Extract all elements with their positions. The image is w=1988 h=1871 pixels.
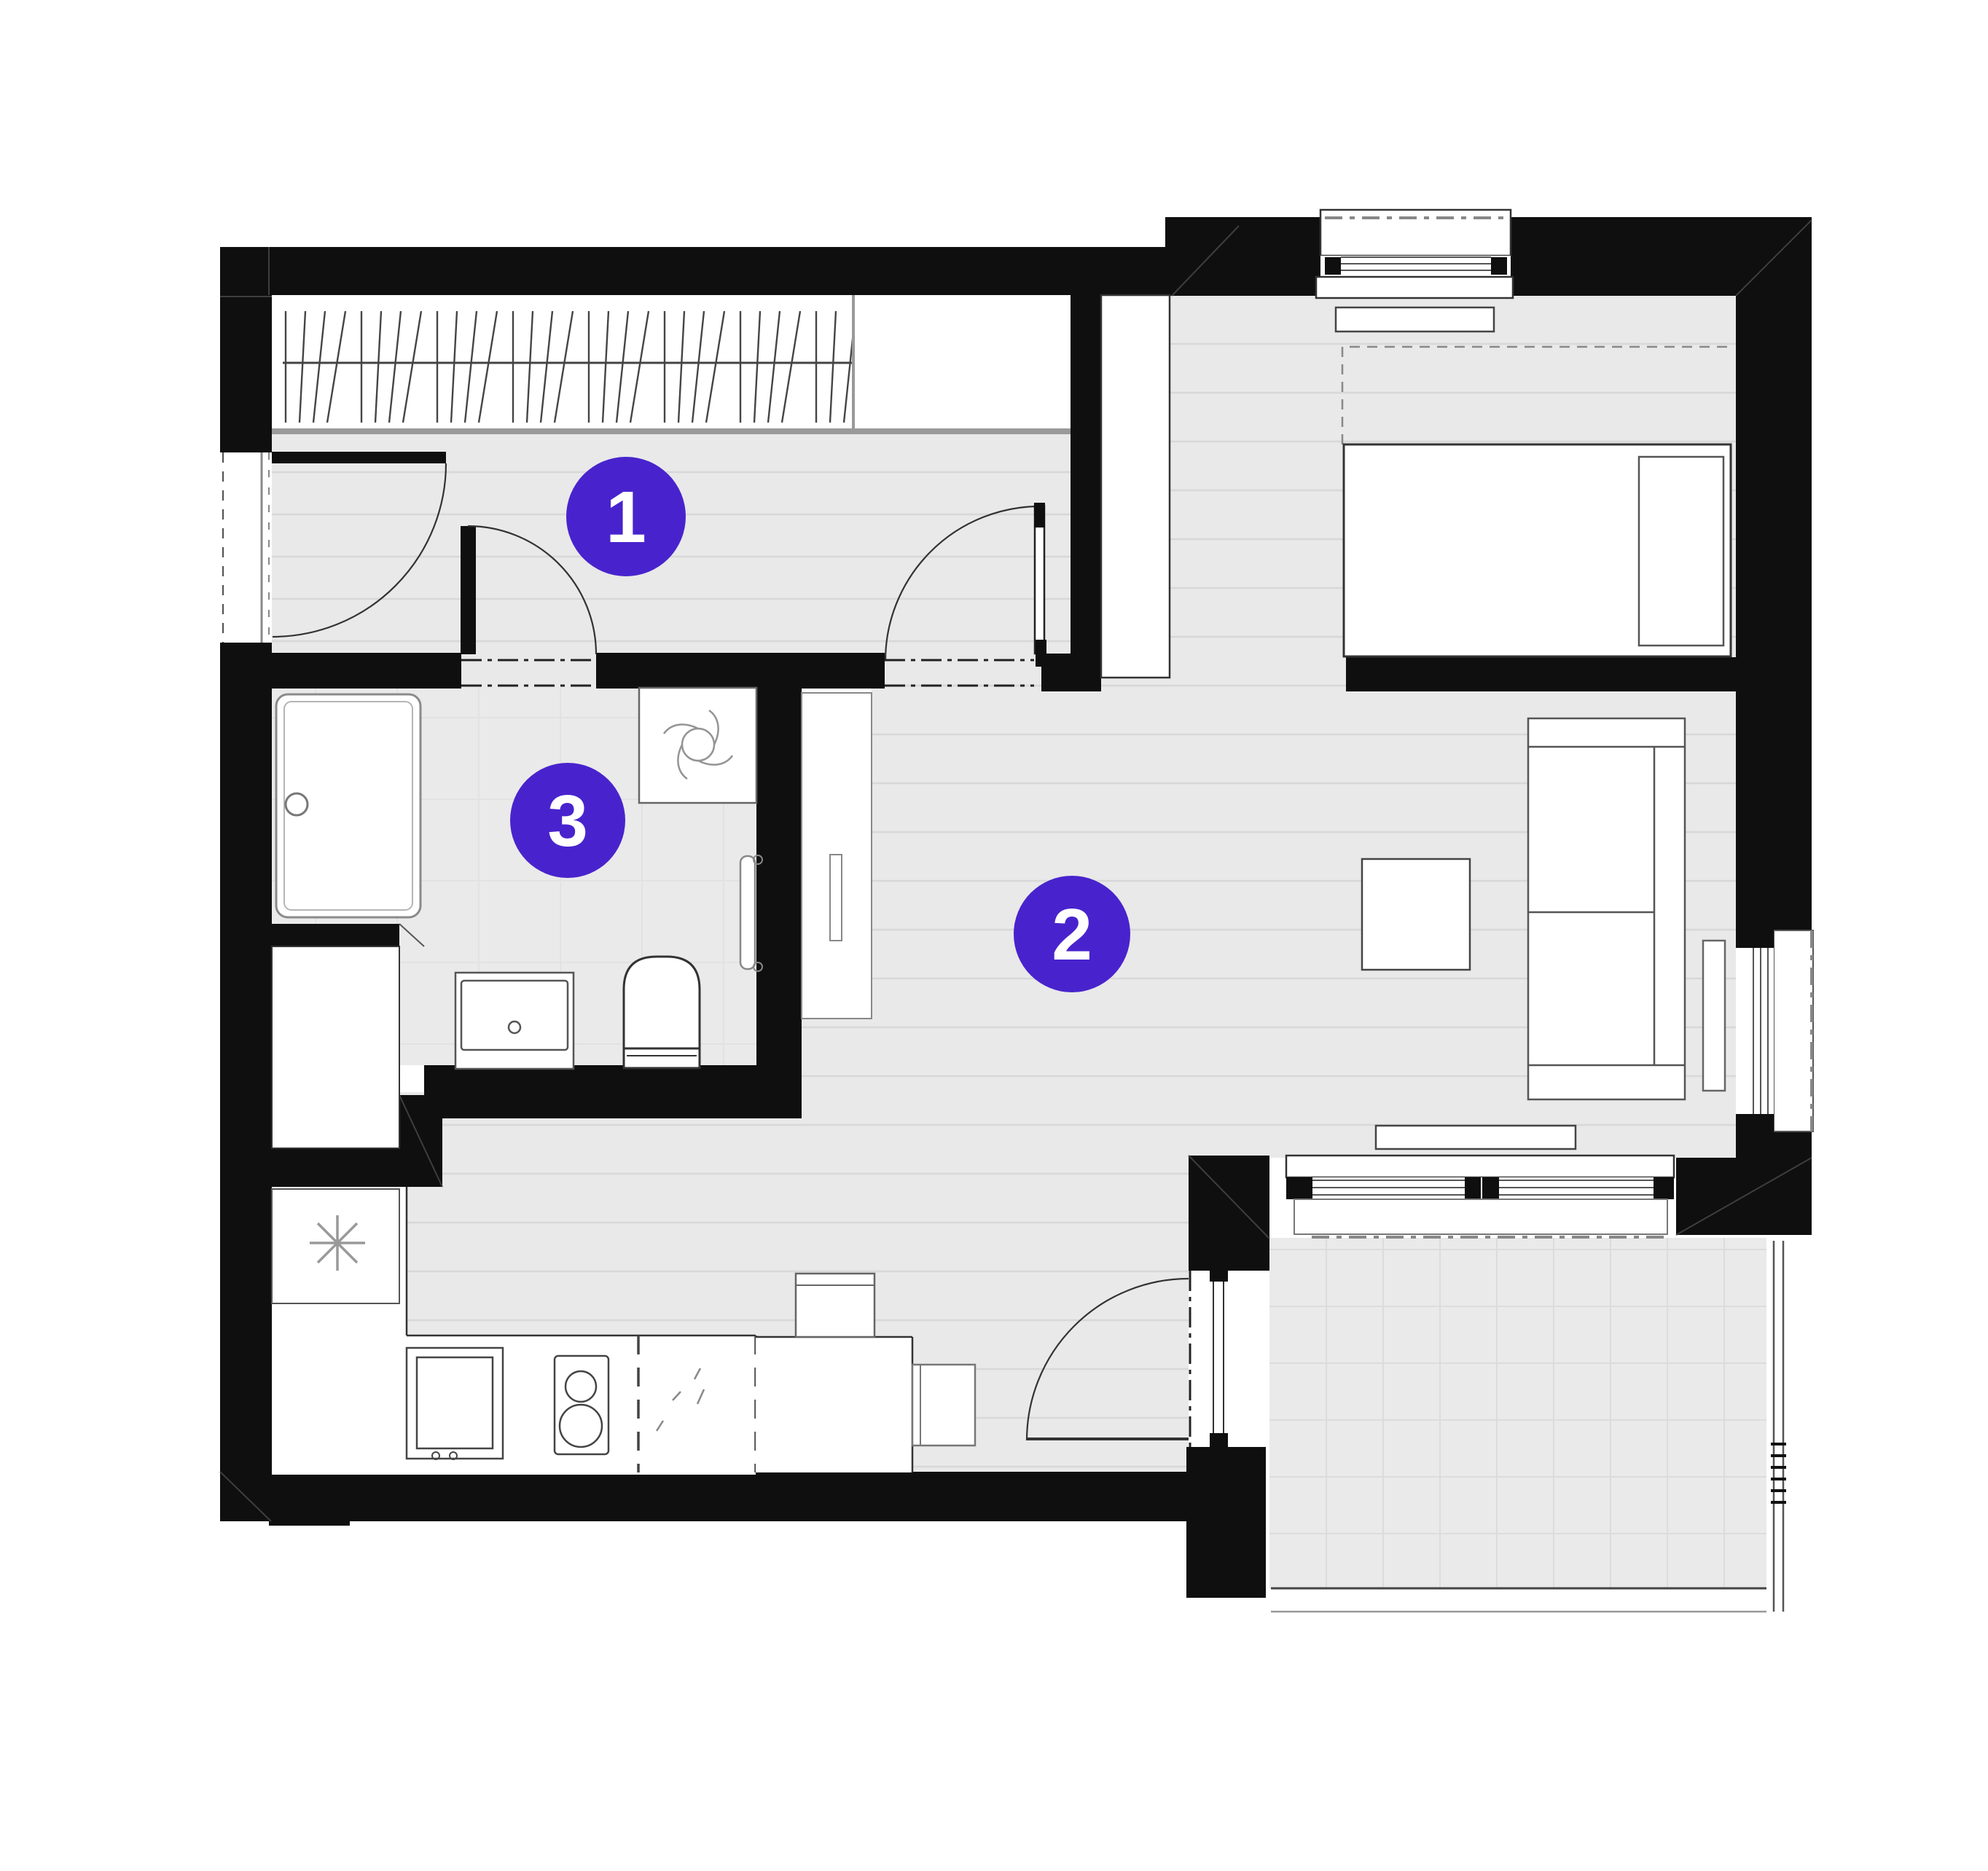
svg-text:1: 1 [606, 476, 646, 558]
svg-text:3: 3 [547, 780, 588, 862]
svg-text:2: 2 [1052, 894, 1092, 976]
